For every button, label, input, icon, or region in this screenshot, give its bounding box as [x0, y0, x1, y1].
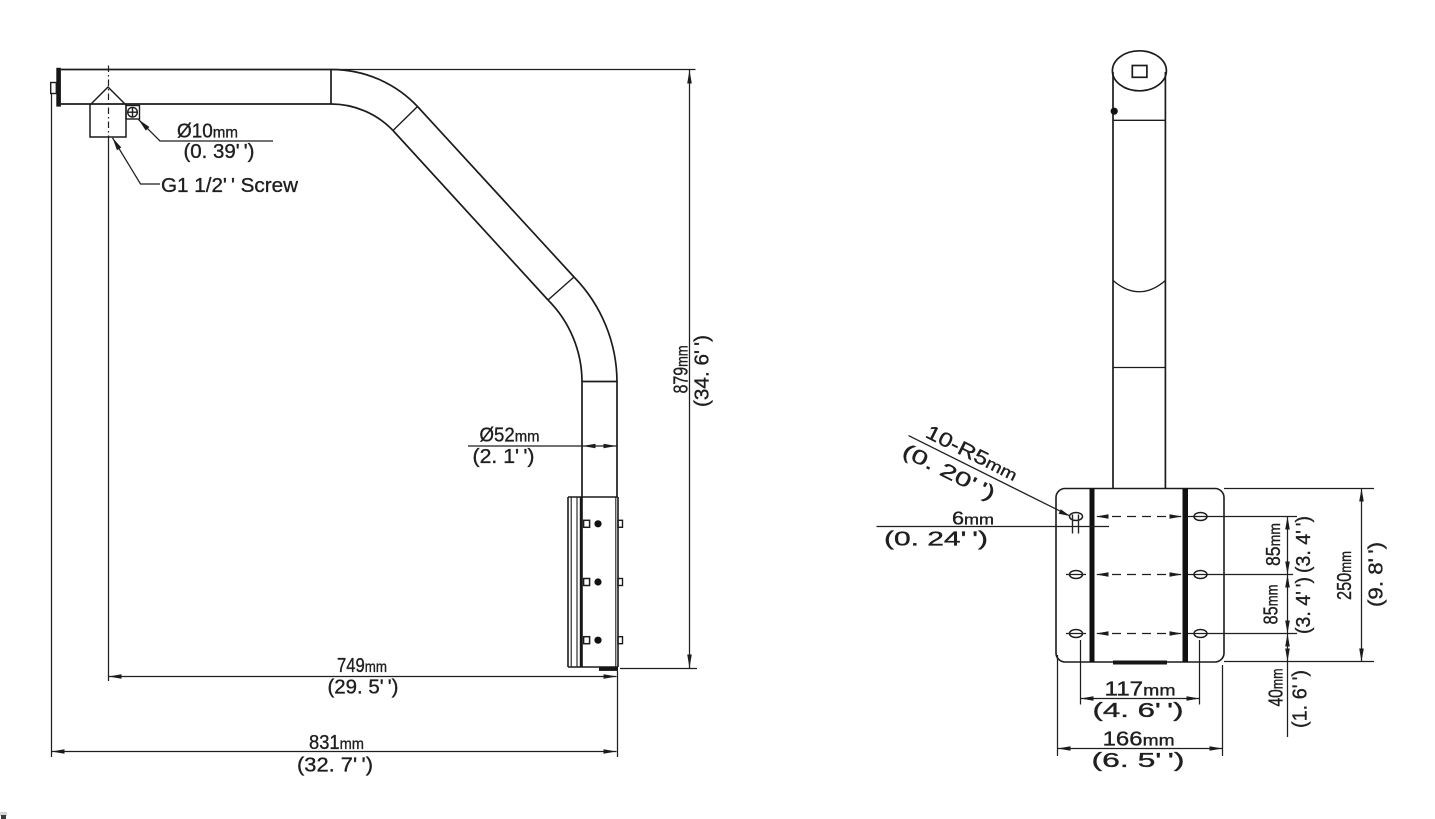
- svg-text:Ø52mm: Ø52mm: [480, 425, 540, 447]
- svg-text:(34. 6' '): (34. 6' '): [692, 335, 714, 407]
- svg-text:749mm: 749mm: [337, 655, 387, 677]
- svg-text:85mm: 85mm: [1263, 523, 1285, 566]
- svg-text:(4. 6' '): (4. 6' '): [1093, 700, 1184, 722]
- svg-text:831mm: 831mm: [309, 732, 364, 754]
- svg-text:(6. 5' '): (6. 5' '): [1092, 750, 1185, 772]
- svg-text:117mm: 117mm: [1105, 679, 1176, 701]
- svg-text:(9. 8' '): (9. 8' '): [1366, 542, 1388, 607]
- svg-text:85mm: 85mm: [1261, 585, 1283, 625]
- svg-text:(2. 1' '): (2. 1' '): [473, 446, 535, 468]
- svg-text:250mm: 250mm: [1334, 551, 1356, 600]
- svg-text:(3. 4' '): (3. 4' '): [1293, 577, 1315, 634]
- svg-text:G1 1/2' ' Screw: G1 1/2' ' Screw: [161, 175, 299, 197]
- svg-text:(29. 5' '): (29. 5' '): [328, 677, 399, 699]
- svg-text:(1. 6' '): (1. 6' '): [1290, 670, 1312, 728]
- svg-text:6mm: 6mm: [952, 508, 994, 528]
- svg-text:166mm: 166mm: [1103, 729, 1175, 751]
- svg-text:(3. 4' '): (3. 4' '): [1293, 516, 1315, 573]
- svg-text:Ø10mm: Ø10mm: [177, 121, 238, 143]
- svg-text:(0. 24' '): (0. 24' '): [884, 529, 988, 551]
- svg-text:879mm: 879mm: [671, 346, 693, 394]
- svg-text:40mm: 40mm: [1266, 669, 1288, 707]
- svg-text:(0. 39' '): (0. 39' '): [184, 141, 255, 163]
- svg-text:(32. 7' '): (32. 7' '): [297, 755, 373, 777]
